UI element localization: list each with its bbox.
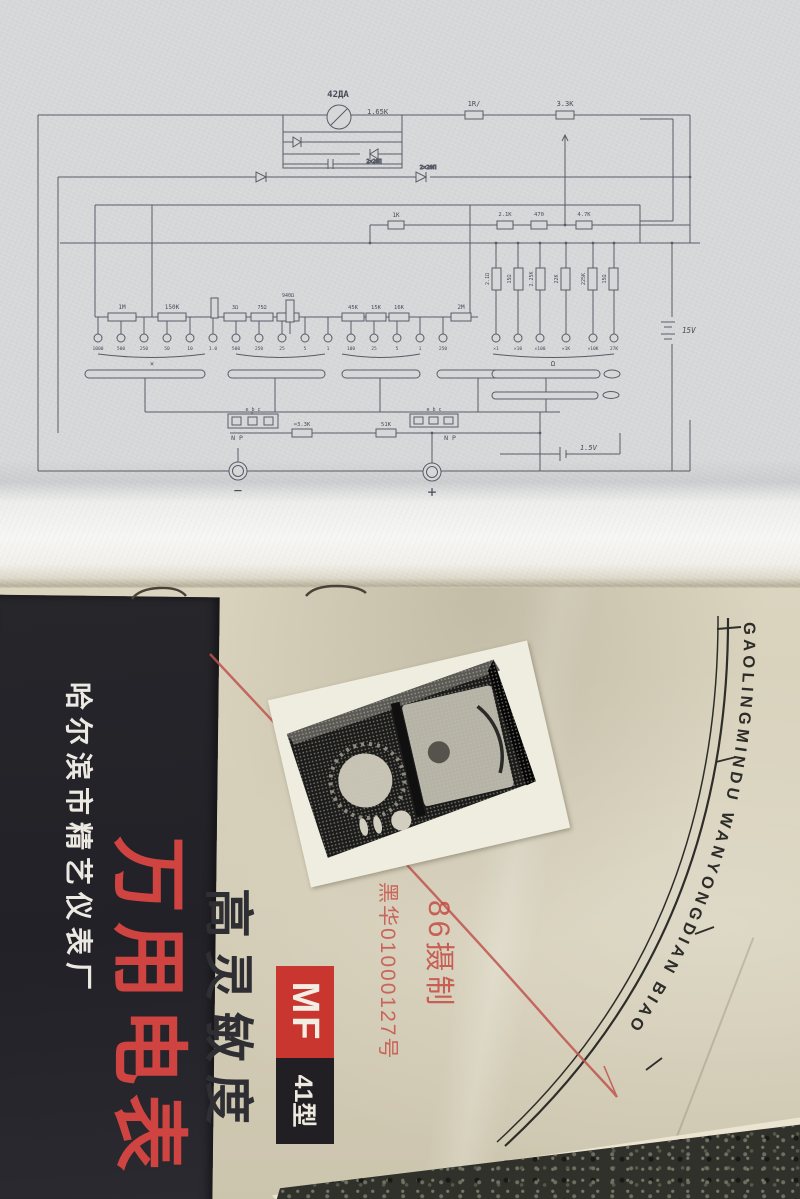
diode-label-box: 2×2ФП <box>366 159 381 165</box>
resistor-label: 4.7K <box>577 212 591 218</box>
resistor-label: 22K <box>554 274 560 283</box>
contact-label: 100 <box>347 346 356 352</box>
stamp-text-year: 86摄制 <box>424 900 464 1040</box>
contact-label: 10 <box>187 346 193 352</box>
top-resistors: 1R/ 3.3K 1K 2.1K 470 4.7K <box>388 100 592 229</box>
meter-coil-label: 1.65K <box>367 108 389 116</box>
contact-label: 1.0 <box>209 346 218 352</box>
contact-label: 1000 <box>92 346 103 352</box>
socket-label: N P <box>444 434 456 442</box>
contact-label: ×1 <box>493 346 499 352</box>
resistor-label: 150K <box>165 304 180 311</box>
resistor-label: 16K <box>394 305 405 311</box>
contact-label: 250 <box>140 346 149 352</box>
resistor-label: 3Ω <box>232 305 238 311</box>
resistor-label: 470 <box>534 212 544 218</box>
resistor-label: 2M <box>457 304 465 311</box>
manual-photo: 42ДА 1.65K 2×2ФП 2×2ФП 1R/ 3.3K 1K 2.1K … <box>0 0 800 1199</box>
contact-label: 1 <box>419 346 422 352</box>
range-resistors: 1M 150K 3Ω 75Ω 940Ω 45K 15K 16K 2M <box>108 293 471 322</box>
resistor-label: 225K <box>581 273 587 285</box>
diode-label-line: 2×2ФП <box>420 165 437 171</box>
switch-wipers <box>85 370 620 399</box>
resistor-label: 1M <box>118 304 126 311</box>
factory-name: 哈尔滨市精艺仪表厂 <box>62 682 100 1028</box>
contact-label: ×100 <box>534 346 545 352</box>
plus-terminal-label: + <box>427 483 436 501</box>
contact-label: ×1K <box>562 346 571 352</box>
contact-label: ×10 <box>514 346 523 352</box>
socket-pins-label: e b c <box>245 407 260 413</box>
terminals: − + <box>229 462 441 501</box>
contact-label: 25 <box>371 346 377 352</box>
meter-symbol: 42ДА 1.65K <box>327 90 389 129</box>
stamp-text-serial: 黑华01000127号 <box>378 882 404 1174</box>
resistor-label: 51K <box>381 422 392 428</box>
subtitle-sensitivity: 高灵敏度 <box>214 888 268 1166</box>
contact-label: 500 <box>117 346 126 352</box>
product-title: 万用电表 <box>122 836 210 1198</box>
model-number: 41型 <box>276 1058 334 1144</box>
resistor-label: ≈3.3K <box>294 422 311 428</box>
wires <box>38 115 700 471</box>
resistor-label: 1K <box>392 212 400 219</box>
resistor-label: 2.25K <box>529 271 535 286</box>
model-badge: MF 41型 <box>276 966 334 1144</box>
model-prefix: MF <box>276 966 334 1058</box>
resistor-label: 45K <box>348 305 359 311</box>
meter-type-label: 42ДА <box>327 90 349 100</box>
contact-label: 5 <box>396 346 399 352</box>
group-label: Ω <box>551 360 555 368</box>
resistor-label: 1R/ <box>468 100 481 108</box>
contact-label: 25 <box>279 346 285 352</box>
resistor-label: 2.1K <box>498 212 512 218</box>
rotary-switch-contacts: 1000 500 250 50 10 1.0 500 250 25 5 1 10… <box>92 334 618 368</box>
resistor-label: 15Ω <box>507 274 513 283</box>
contact-label: 5 <box>304 346 307 352</box>
resistor-label: 940Ω <box>282 293 294 299</box>
contact-label: ×10K <box>587 346 598 352</box>
group-label: × <box>150 360 154 368</box>
shunt-resistors: 2.1Ω 15Ω 2.25K 22K 225K 15Ω <box>485 268 618 290</box>
resistor-label: 75Ω <box>257 305 266 311</box>
contact-label: 250 <box>255 346 264 352</box>
socket-label: N P <box>231 434 243 442</box>
resistor-label: 15K <box>371 305 382 311</box>
battery-symbols: 15V 1.5V <box>580 326 696 452</box>
contact-label: 500 <box>232 346 241 352</box>
minus-terminal-label: − <box>234 483 242 499</box>
contact-label: 1 <box>327 346 330 352</box>
contact-label: 27K <box>610 346 619 352</box>
battery-label: 15V <box>682 326 696 335</box>
battery-label: 1.5V <box>580 444 598 452</box>
resistor-label: 3.3K <box>557 100 575 108</box>
contact-label: 50 <box>164 346 170 352</box>
resistor-label: 2.1Ω <box>485 273 491 285</box>
resistor-label: 15Ω <box>602 274 608 283</box>
socket-pins-label: e b c <box>426 407 441 413</box>
contact-label: 250 <box>439 346 448 352</box>
circuit-diagram: 42ДА 1.65K 2×2ФП 2×2ФП 1R/ 3.3K 1K 2.1K … <box>0 0 800 560</box>
